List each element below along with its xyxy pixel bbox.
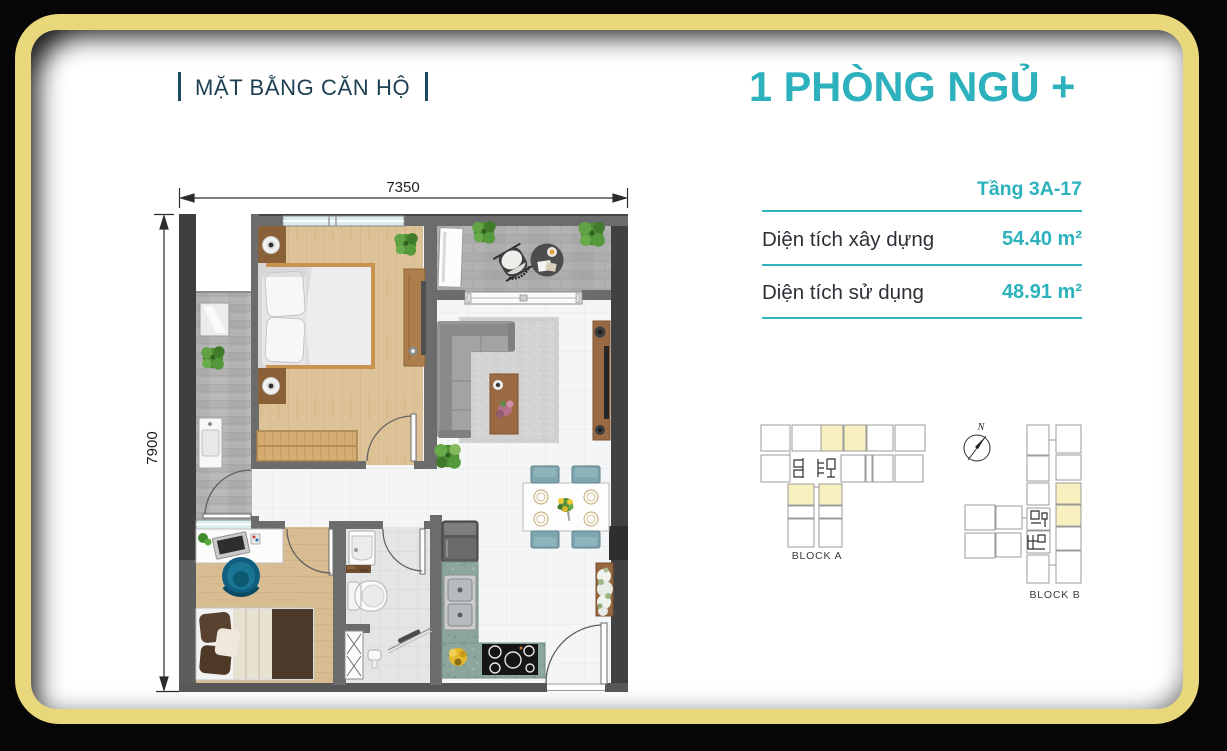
- svg-text:BLOCK A: BLOCK A: [792, 550, 843, 562]
- svg-text:7350: 7350: [386, 179, 419, 196]
- svg-text:BLOCK B: BLOCK B: [1029, 589, 1080, 601]
- svg-text:N: N: [977, 422, 986, 433]
- svg-text:7900: 7900: [144, 431, 161, 464]
